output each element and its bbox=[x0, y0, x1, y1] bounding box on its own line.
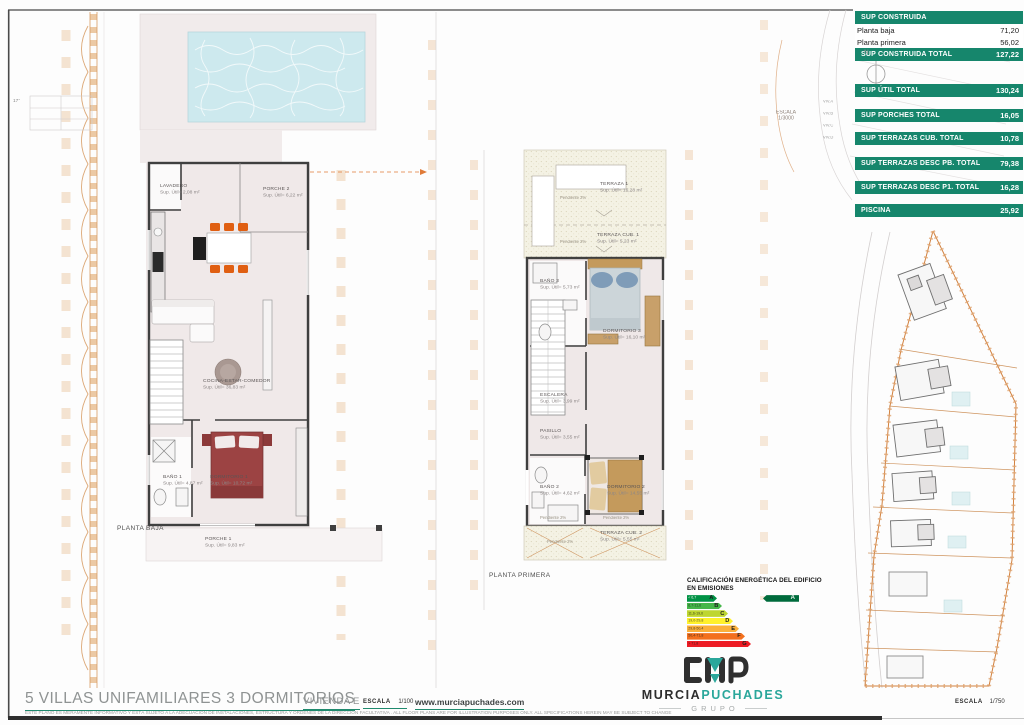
setback-arrow bbox=[310, 169, 427, 175]
site-pools bbox=[944, 392, 970, 612]
scale-value: 1/100 bbox=[398, 699, 413, 705]
grupo-dash-left bbox=[659, 708, 681, 709]
energy-rows: < 6,7 A 6,7-11,6 B 11,6-19,0 C 19,0-29,8… bbox=[687, 595, 847, 647]
energy-row-b: 6,7-11,6 B bbox=[687, 603, 722, 610]
site-plan-scale: ESCALA1/750 bbox=[955, 699, 1005, 705]
row-label: SUP PORCHES TOTAL bbox=[855, 112, 940, 119]
brand-name-puchades: PUCHADES bbox=[701, 688, 784, 702]
room-label-dormitorio1: DORMITORIO 1 Sup. Útil= 10,72 m² bbox=[210, 474, 252, 487]
plot-boundary-fence bbox=[82, 12, 98, 688]
terraza-cub2-floor bbox=[524, 526, 666, 560]
porche1-floor bbox=[146, 528, 382, 561]
row-label: SUP TERRAZAS DESC P1. TOTAL bbox=[855, 184, 979, 191]
bottom-border-thin bbox=[882, 718, 1024, 719]
table-row-util-total: SUP ÚTIL TOTAL 130,24 bbox=[855, 84, 1023, 97]
site-plan bbox=[851, 231, 1017, 688]
energy-row-g: > 71,8 G bbox=[687, 641, 751, 648]
mini-plot-label: VIV.B bbox=[823, 112, 833, 116]
room-label-lavadero: LAVADERO Sup. Útil= 2,08 m² bbox=[160, 183, 200, 196]
terrace-planter-2 bbox=[532, 176, 554, 246]
site-scale-value: 1/750 bbox=[990, 699, 1005, 705]
corner-note: 17° bbox=[13, 99, 20, 104]
vivienda-label: VIVIENDA E bbox=[303, 696, 360, 710]
areas-table: SUP CONSTRUIDA Planta baja 71,20 Planta … bbox=[855, 11, 1023, 217]
table-row-porches-total: SUP PORCHES TOTAL 16,05 bbox=[855, 109, 1023, 122]
website-link[interactable]: www.murciapuchades.com bbox=[415, 697, 524, 710]
row-label: SUP TERRAZAS CUB. TOTAL bbox=[855, 135, 964, 142]
room-label-bano3: BAÑO 3 Sup. Útil= 5,73 m² bbox=[540, 278, 580, 291]
stairs-pb bbox=[150, 340, 183, 424]
room-label-bano2: BAÑO 2 Sup. Útil= 4,62 m² bbox=[540, 484, 580, 497]
bed-dormitorio3 bbox=[588, 259, 642, 330]
plan-label-planta-baja: PLANTA BAJA bbox=[117, 525, 164, 532]
room-label-porche2: PORCHE 2 Sup. Útil= 6,22 m² bbox=[263, 186, 303, 199]
room-label-dormitorio3: DORMITORIO 3 Sup. Útil= 16,10 m² bbox=[603, 328, 645, 341]
table-row-terrazas-desc-p1: SUP TERRAZAS DESC P1. TOTAL 16,28 bbox=[855, 181, 1023, 194]
energy-row-a: < 6,7 A bbox=[687, 595, 717, 602]
room-label-dormitorio2: DORMITORIO 2 Sup. Útil= 14,55 m² bbox=[607, 484, 649, 497]
plan-label-planta-primera: PLANTA PRIMERA bbox=[489, 572, 550, 579]
energy-row-d: 19,0-29,8 D bbox=[687, 618, 733, 625]
brand-name: MURCIAPUCHADES bbox=[633, 688, 793, 702]
tv-unit bbox=[263, 300, 272, 390]
site-scale-word: ESCALA bbox=[955, 699, 983, 705]
row-label: Planta baja bbox=[855, 26, 895, 35]
room-label-pasillo: PASILLO Sup. Útil= 3,55 m² bbox=[540, 428, 580, 441]
energy-row-f: 50,4-71,8 F bbox=[687, 633, 745, 640]
room-label-porche1: PORCHE 1 Sup. Útil= 9,83 m² bbox=[205, 536, 245, 549]
scale-label: ESCALA 1/100 bbox=[363, 699, 407, 709]
scale-word: ESCALA bbox=[363, 699, 391, 705]
row-value: 79,38 bbox=[1000, 159, 1023, 168]
energy-rating-indicator: A bbox=[763, 595, 799, 602]
energy-chart-title: CALIFICACIÓN ENERGÉTICA DEL EDIFICIO bbox=[687, 577, 847, 585]
row-value: 16,05 bbox=[1000, 111, 1023, 120]
room-label-terraza1: TERRAZA 1 Sup. Útil= 16,28 m² bbox=[600, 181, 642, 194]
row-label: SUP ÚTIL TOTAL bbox=[855, 87, 920, 94]
pendiente-label: Pendiente 2% bbox=[540, 516, 566, 520]
room-label-terraza-cub2: TERRAZA CUB. 2 Sup. Útil= 5,55 m² bbox=[600, 530, 642, 543]
pendiente-label: Pendiente 2% bbox=[560, 240, 586, 244]
row-value: 130,24 bbox=[996, 86, 1023, 95]
row-value: 25,92 bbox=[1000, 206, 1023, 215]
row-value: 71,20 bbox=[1000, 26, 1023, 35]
row-value: 56,02 bbox=[1000, 38, 1023, 47]
table-row-planta-baja: Planta baja 71,20 bbox=[855, 24, 1023, 36]
terrace-band bbox=[140, 130, 282, 163]
room-label-terraza-cub1: TERRAZA CUB. 1 Sup. Útil= 5,23 m² bbox=[597, 232, 639, 245]
plot-dividers bbox=[864, 349, 1017, 652]
site-villas bbox=[887, 260, 955, 678]
row-label: SUP CONSTRUIDA bbox=[855, 14, 927, 21]
pendiente-label: Pendiente 2% bbox=[603, 516, 629, 520]
row-label: Planta primera bbox=[855, 38, 906, 47]
row-label: SUP CONSTRUIDA TOTAL bbox=[855, 51, 952, 58]
table-row-sup-construida: SUP CONSTRUIDA bbox=[855, 11, 1023, 24]
room-label-bano1: BAÑO 1 Sup. Útil= 4,87 m² bbox=[163, 474, 203, 487]
corner-grid bbox=[30, 96, 92, 130]
row-value: 10,78 bbox=[1000, 134, 1023, 143]
wardrobe-dorm3 bbox=[645, 296, 660, 346]
pendiente-label: Pendiente 2% bbox=[560, 196, 586, 200]
energy-row-c: 11,6-19,0 C bbox=[687, 610, 728, 617]
brand-grupo: GRUPO bbox=[687, 704, 739, 713]
table-row-planta-primera: Planta primera 56,02 bbox=[855, 36, 1023, 48]
energy-chart-subtitle: EN EMISIONES bbox=[687, 585, 847, 593]
bottom-border-bar bbox=[8, 716, 882, 720]
mini-plot-label: VIV.C bbox=[823, 124, 833, 128]
table-row-terrazas-desc-pb: SUP TERRAZAS DESC PB. TOTAL 79,38 bbox=[855, 157, 1023, 170]
row-label: PISCINA bbox=[855, 207, 891, 214]
grupo-dash-right bbox=[745, 708, 767, 709]
compass-north-label: N bbox=[864, 49, 869, 56]
brand-name-murcia: MURCIA bbox=[642, 688, 702, 702]
table-row-terrazas-cub-total: SUP TERRAZAS CUB. TOTAL 10,78 bbox=[855, 132, 1023, 145]
energy-row-e: 29,8-50,4 E bbox=[687, 625, 739, 632]
pendiente-label: Pendiente 2% bbox=[547, 540, 573, 544]
room-label-escalera: ESCALERA Sup. Útil= 3,99 m² bbox=[540, 392, 580, 405]
planta-primera-plan bbox=[524, 150, 666, 560]
disclaimer-text: ESTE PLANO ES MERAMENTE INFORMATIVO Y ES… bbox=[25, 711, 672, 716]
murcia-puchades-brand: MURCIAPUCHADES GRUPO bbox=[633, 651, 793, 713]
row-value: 16,28 bbox=[1000, 183, 1023, 192]
table-row-construida-total: SUP CONSTRUIDA TOTAL 127,22 bbox=[855, 48, 1023, 61]
row-value: 127,22 bbox=[996, 50, 1023, 59]
energy-rating-chart: CALIFICACIÓN ENERGÉTICA DEL EDIFICIO EN … bbox=[687, 577, 847, 648]
bed-dormitorio1 bbox=[202, 432, 272, 498]
mini-plot-label: VIV.A bbox=[823, 100, 833, 104]
kitchen-counter bbox=[151, 212, 165, 312]
room-label-cocina: COCINA-ESTAR-COMEDOR Sup. Útil= 36,83 m² bbox=[203, 378, 270, 391]
table-row-piscina: PISCINA 25,92 bbox=[855, 204, 1023, 217]
mini-site-scale: ESCALA 1/3000 bbox=[767, 110, 804, 122]
row-label: SUP TERRAZAS DESC PB. TOTAL bbox=[855, 160, 980, 167]
wardrobe-dorm1 bbox=[296, 428, 307, 516]
plan-sheet: SUP CONSTRUIDA Planta baja 71,20 Planta … bbox=[0, 0, 1024, 725]
mini-plot-label: VIV.D bbox=[823, 136, 833, 140]
